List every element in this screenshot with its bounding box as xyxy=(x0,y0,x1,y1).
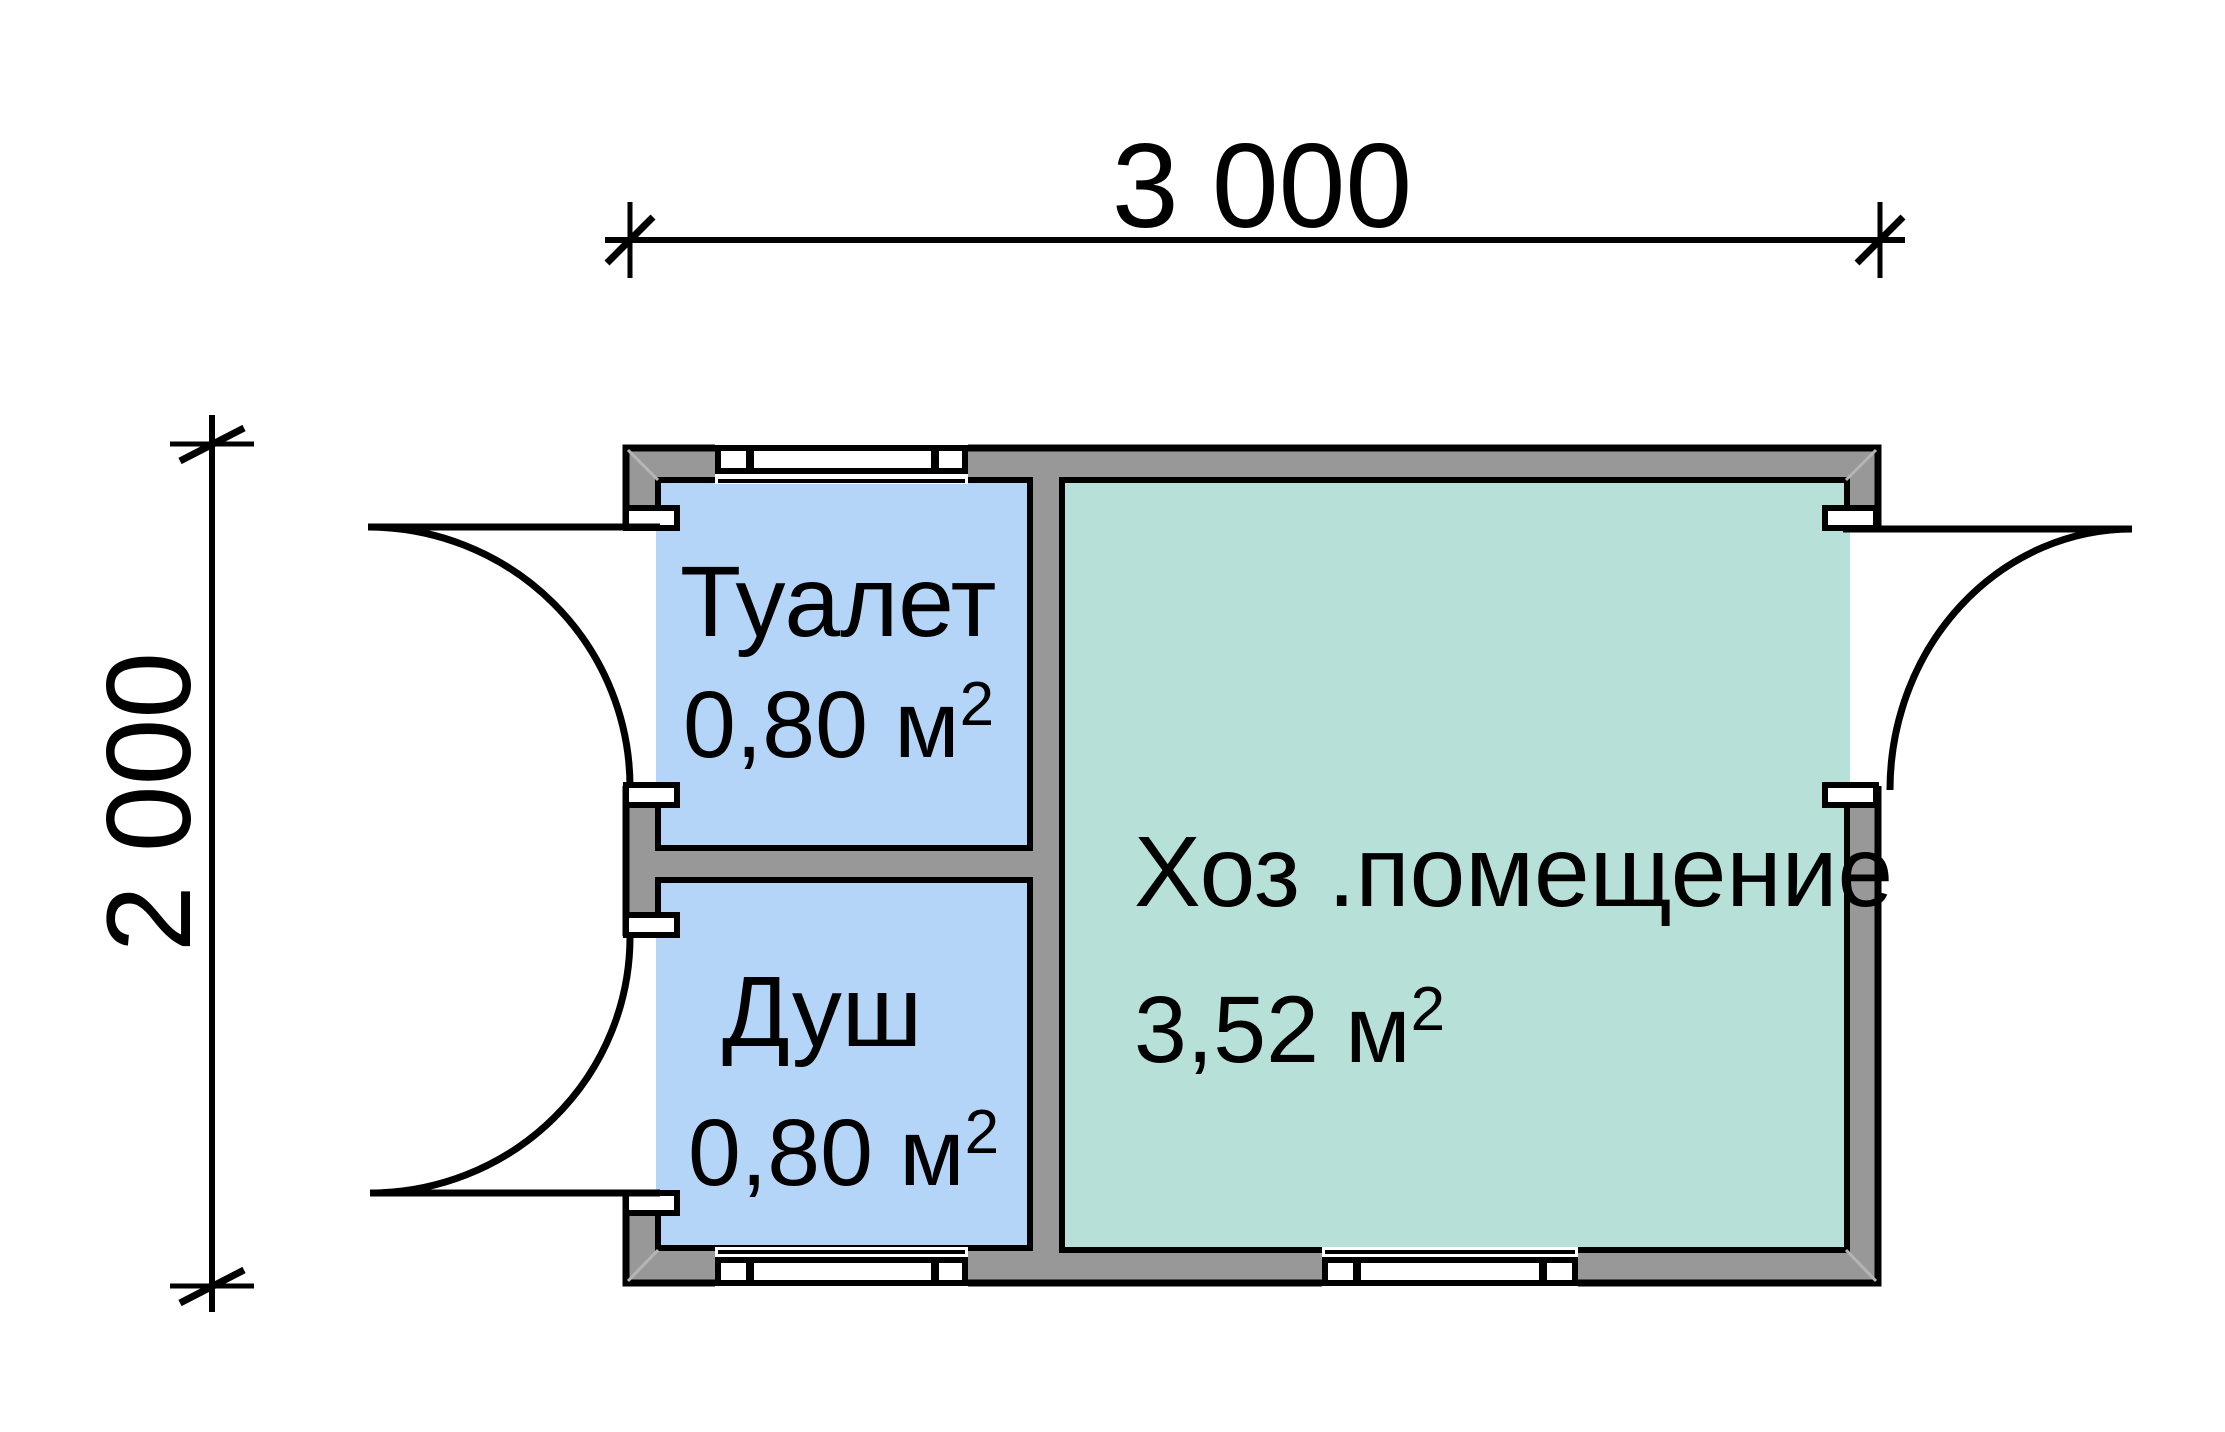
toilet-room xyxy=(658,480,1030,848)
window-frame xyxy=(1325,1260,1575,1283)
utility-area-superscript: 2 xyxy=(1411,975,1445,1044)
utility-area-value: 3,52 м xyxy=(1134,977,1411,1083)
shower-area-value: 0,80 м xyxy=(688,1100,965,1206)
floor-plan-canvas: 3 000 2 000 Туалет 0,80 м2 Душ 0,80 м2 Х… xyxy=(0,0,2225,1432)
height-dimension-label: 2 000 xyxy=(82,652,216,952)
window-frame xyxy=(718,448,965,471)
shower-door-jamb-top xyxy=(626,915,677,935)
toilet-room-area: 0,80 м2 xyxy=(683,670,994,778)
toilet-door-jamb-bottom xyxy=(626,785,677,805)
toilet-door-threshold xyxy=(656,528,662,786)
shower-room-name: Душ xyxy=(722,956,922,1068)
utility-room-area: 3,52 м2 xyxy=(1134,975,1445,1083)
toilet-room-name: Туалет xyxy=(680,546,996,658)
width-dimension-label: 3 000 xyxy=(1112,119,1412,253)
toilet-area-value: 0,80 м xyxy=(683,672,960,778)
shower-door-threshold xyxy=(656,936,662,1192)
utility-room-name: Хоз .помещение xyxy=(1134,816,1893,928)
toilet-area-superscript: 2 xyxy=(960,670,994,739)
shower-room-area: 0,80 м2 xyxy=(688,1098,999,1206)
utility-door-jamb-top xyxy=(1825,508,1876,528)
floor-plan-drawing: 3 000 2 000 Туалет 0,80 м2 Душ 0,80 м2 Х… xyxy=(0,0,2225,1432)
utility-door-threshold xyxy=(1843,528,1850,786)
window-frame xyxy=(718,1260,965,1283)
shower-area-superscript: 2 xyxy=(965,1098,999,1167)
utility-door-jamb-bottom xyxy=(1825,785,1876,805)
